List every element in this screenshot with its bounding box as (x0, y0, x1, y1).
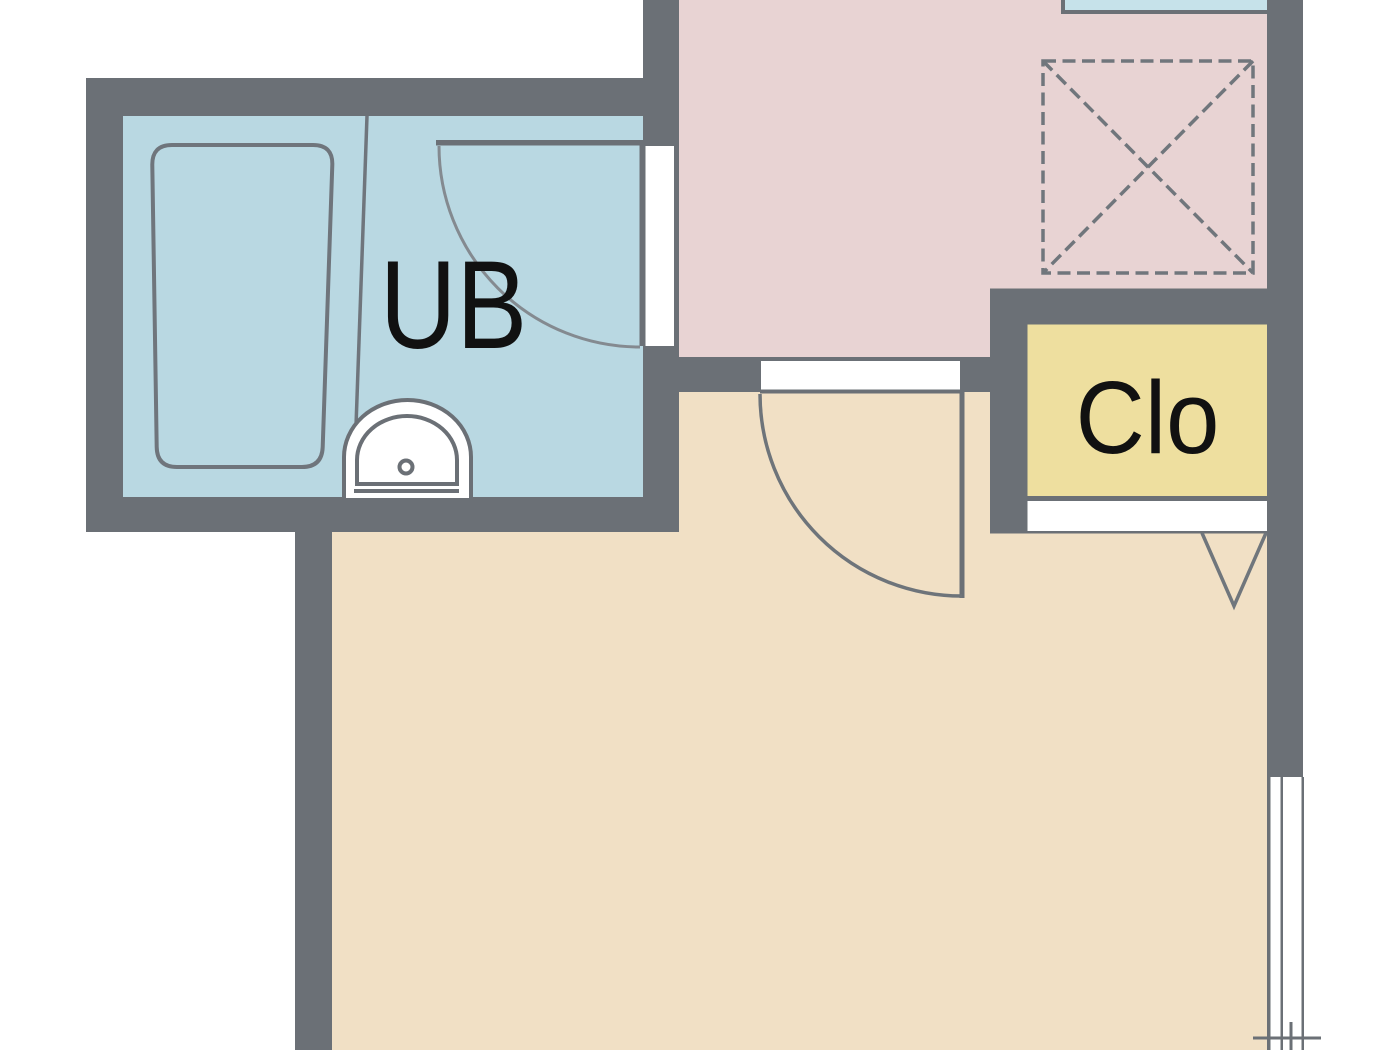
svg-text:UB: UB (380, 235, 528, 375)
svg-text:Clo: Clo (1076, 361, 1220, 476)
